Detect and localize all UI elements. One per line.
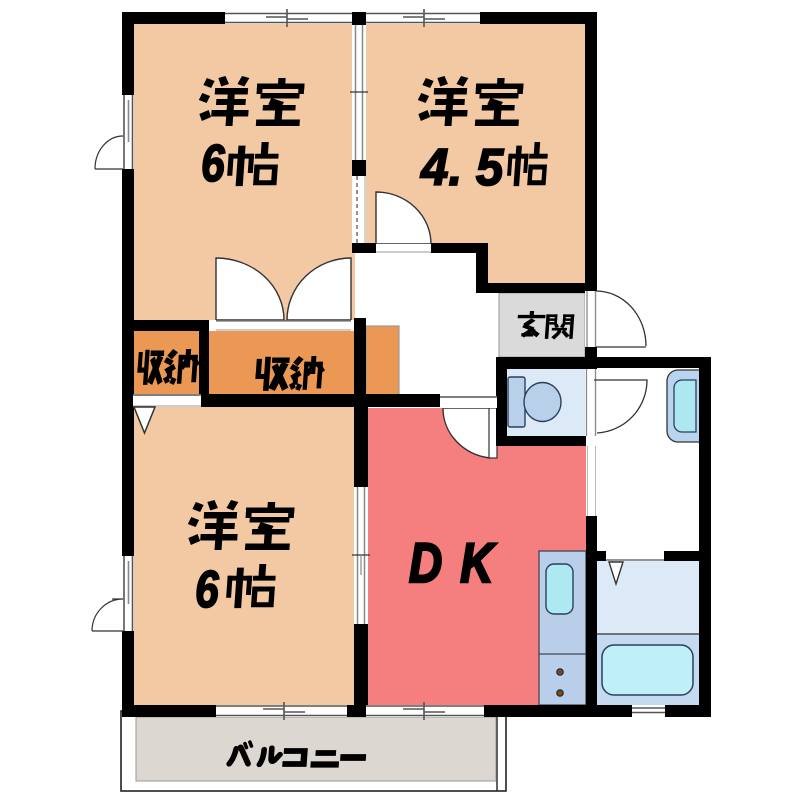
svg-text:DK: DK [409, 532, 511, 594]
svg-text:4. 5: 4. 5 [420, 138, 504, 196]
svg-text:6: 6 [195, 561, 219, 619]
svg-text:6: 6 [201, 135, 225, 193]
